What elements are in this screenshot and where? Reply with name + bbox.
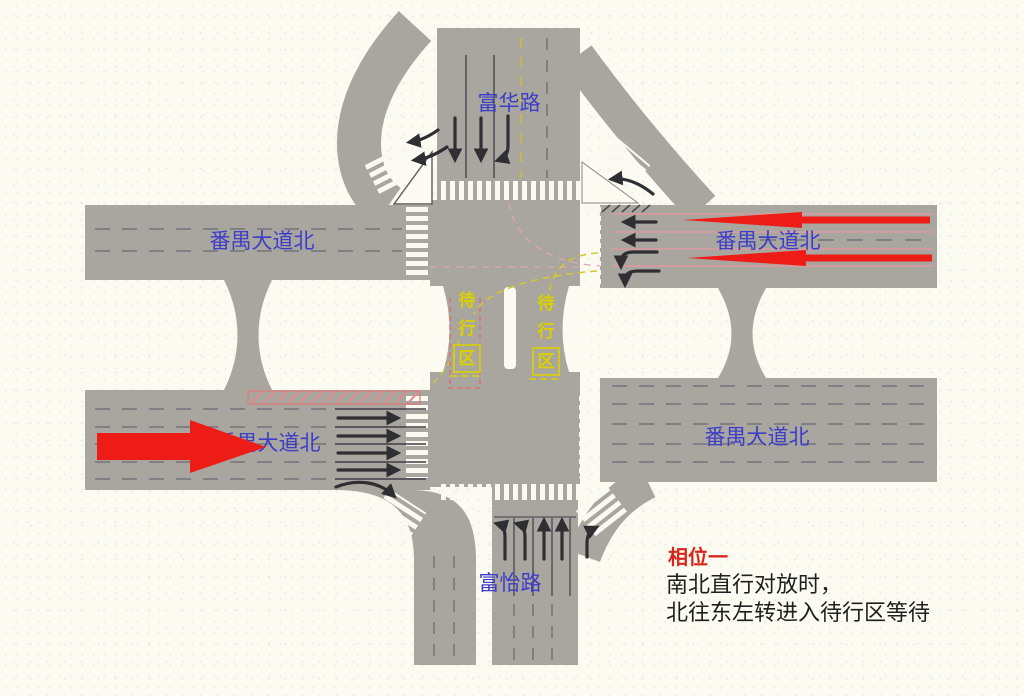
crosswalk-west-upper	[406, 207, 428, 278]
label-road-north: 富华路	[478, 92, 541, 115]
crosswalk-east-lower	[579, 392, 600, 478]
phase-title: 相位一	[668, 545, 728, 569]
road-south-southbound	[414, 556, 476, 665]
label-road-east-lower: 番禺大道北	[705, 426, 810, 449]
traffic-phase-diagram: 待 行 区 待 行 区 富华路 番禺大道北 番禺大道北 番禺大道北 番禺大道北 …	[0, 0, 1024, 696]
connector-east	[718, 288, 766, 378]
waiting-char: 区	[538, 352, 555, 371]
phase-description-line1: 南北直行对放时，	[666, 572, 842, 597]
legend: 相位一 南北直行对放时， 北往东左转进入待行区等待	[666, 545, 930, 625]
crosswalk-north	[438, 181, 580, 200]
island-center-left	[421, 286, 450, 372]
island-center-median	[504, 287, 516, 369]
waiting-char: 待	[538, 293, 555, 313]
label-road-south: 富怡路	[479, 572, 542, 595]
island-center-right	[563, 286, 592, 372]
connector-west	[224, 280, 272, 390]
crosswalk-east-upper	[584, 206, 601, 290]
phase-description-line2: 北往东左转进入待行区等待	[666, 600, 930, 625]
crosswalk-south	[438, 484, 580, 500]
waiting-char: 行	[537, 321, 555, 341]
intersection-diagram-canvas: 待 行 区 待 行 区 富华路 番禺大道北 番禺大道北 番禺大道北 番禺大道北 …	[0, 0, 1024, 696]
waiting-char: 区	[459, 349, 476, 368]
waiting-zone-text-left: 待 行 区	[458, 290, 476, 368]
waiting-char: 待	[459, 290, 476, 310]
crosswalk-west-lower	[406, 392, 428, 478]
label-road-west-upper: 番禺大道北	[210, 230, 315, 253]
median-hatch-strip	[248, 391, 420, 404]
waiting-char: 行	[458, 318, 476, 338]
waiting-zone-text-right: 待 行 区	[537, 293, 555, 371]
label-road-east-upper: 番禺大道北	[716, 230, 821, 253]
